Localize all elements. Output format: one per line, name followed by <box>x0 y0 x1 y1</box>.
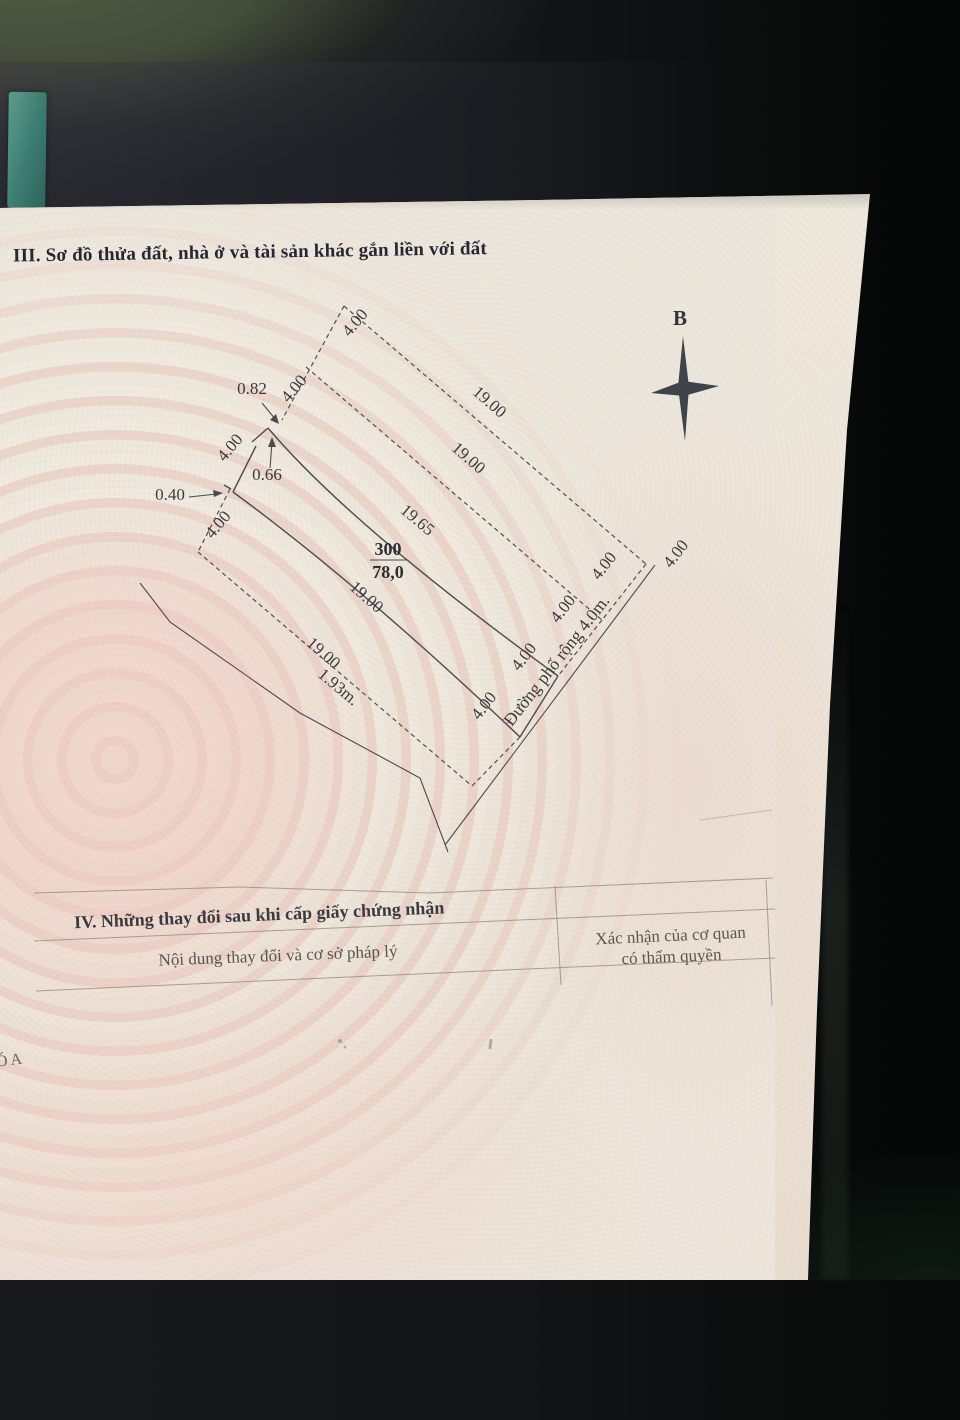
street-boundary-lines <box>140 565 655 852</box>
dimension-label: 19.00 <box>469 382 510 421</box>
north-label: B <box>673 306 687 330</box>
table-column-header-confirmation: Xác nhận của cơ quan có thẩm quyền <box>575 921 767 972</box>
compass-north-icon <box>651 336 719 441</box>
dimension-label: 4.00 <box>507 639 540 674</box>
dimension-label: 0.66 <box>252 465 282 484</box>
dimension-label: 4.00 <box>213 430 247 465</box>
dimension-label: 19.00 <box>448 438 489 477</box>
parcel-id-fraction: 300 78,0 <box>370 539 407 582</box>
dimension-label: 4.00 <box>587 548 620 583</box>
dimension-label: 0.82 <box>237 379 267 398</box>
dimension-label: 0.40 <box>155 485 185 504</box>
parcel-area: 78,0 <box>372 562 404 582</box>
edge-text-fragment: ÓA <box>0 1050 26 1071</box>
photo-of-land-certificate: { "section3": { "title": "III. Sơ đồ thử… <box>0 0 960 1280</box>
dimension-labels: 19.0019.0019.6519.0019.001.93m.0.820.660… <box>155 305 692 723</box>
adjacent-parcel-dashed-lines <box>198 306 646 786</box>
dimension-label: 4.00 <box>659 536 692 571</box>
parcel-number: 300 <box>375 539 402 559</box>
dimension-label: 1.93m. <box>314 664 362 709</box>
ink-smudges <box>338 1039 493 1049</box>
plot-diagram: B 300 78,0 Đường phố rộng 4.0m. 19.0019.… <box>0 0 960 1280</box>
dimension-label: 19.65 <box>397 500 439 539</box>
dimension-label: 4.00 <box>338 305 372 340</box>
dimension-label: 4.00 <box>467 688 500 723</box>
dimension-label: 4.00 <box>201 507 235 542</box>
